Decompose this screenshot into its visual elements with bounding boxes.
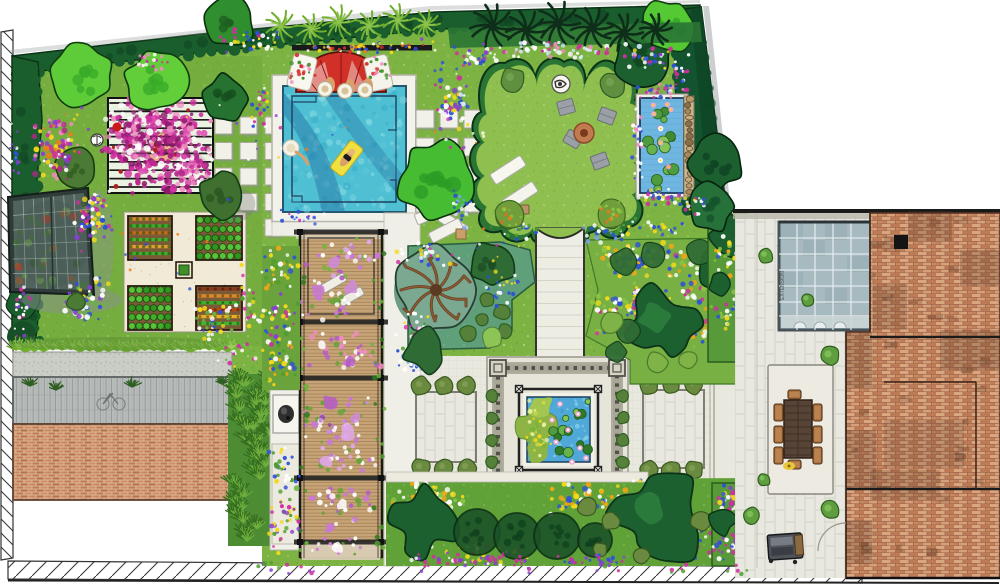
svg-text:EXTENSION: EXTENSION <box>780 271 786 300</box>
